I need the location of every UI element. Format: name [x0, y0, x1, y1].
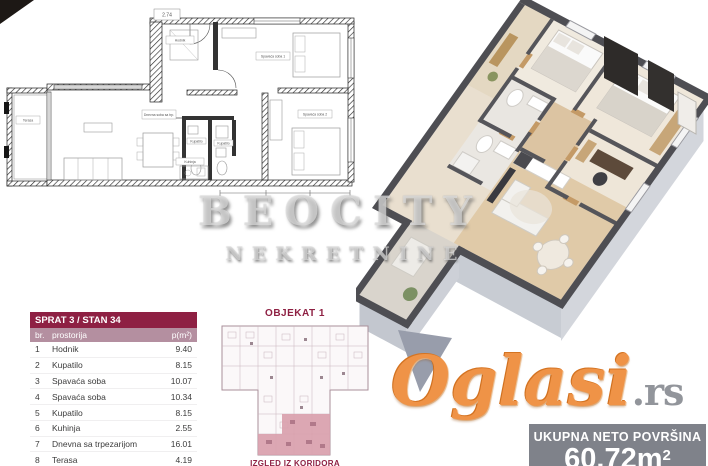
brand-watermark: BEOCITY — [198, 188, 474, 235]
portal-watermark: Oglasi.rs — [391, 348, 683, 416]
portal-tld: .rs — [632, 369, 684, 414]
col-area: p(m²) — [162, 330, 192, 340]
table-row: 4 Spavaća soba 10.34 — [30, 389, 197, 405]
total-area-box: UKUPNA NETO POVRŠINA 60.72m2 — [529, 424, 706, 466]
label-hall: Hodnik — [175, 39, 186, 43]
brand-watermark-sub: NEKRETNINE — [208, 243, 484, 265]
label-terrace: Terasa — [23, 119, 33, 123]
total-area-value: 60.72m2 — [529, 445, 706, 466]
table-column-header: br. prostorija p(m²) — [30, 328, 197, 342]
unit-area-table: SPRAT 3 / STAN 34 br. prostorija p(m²) 1… — [30, 312, 197, 466]
label-kitchen: Kuhinja — [184, 160, 195, 164]
building-caption: IZGLED IZ KORIDORA — [222, 459, 368, 466]
table-body: 1 Hodnik 9.40 2 Kupatilo 8.15 3 Spavaća … — [30, 342, 197, 466]
label-bedroom1: Spavaća soba 1 — [261, 55, 285, 59]
portal-name: Oglasi — [391, 342, 632, 422]
table-title: SPRAT 3 / STAN 34 — [30, 312, 197, 328]
label-bedroom2: Spavaća soba 2 — [303, 113, 327, 117]
table-row: 8 Terasa 4.19 — [30, 452, 197, 466]
col-num: br. — [35, 330, 52, 340]
label-living: Dnevna soba sa trp. — [144, 113, 174, 117]
table-row: 5 Kupatilo 8.15 — [30, 405, 197, 421]
building-plan — [220, 322, 370, 456]
corner-triangle-decoration — [0, 0, 34, 24]
table-row: 6 Kuhinja 2.55 — [30, 421, 197, 437]
table-row: 7 Dnevna sa trpezarijom 16.01 — [30, 437, 197, 453]
listing-image: 2.74 Dnevna soba sa trp. Terasa Kuhinja … — [0, 0, 708, 466]
dim-note: 2.74 — [162, 13, 172, 19]
label-bath1: Kupatilo — [190, 140, 202, 144]
table-row: 2 Kupatilo 8.15 — [30, 358, 197, 374]
building-title: OBJEKAT 1 — [230, 308, 360, 319]
total-area-label: UKUPNA NETO POVRŠINA — [529, 430, 706, 444]
label-bath2: Kupatilo — [217, 142, 229, 146]
table-row: 3 Spavaća soba 10.07 — [30, 374, 197, 390]
floorplan-2d: 2.74 Dnevna soba sa trp. Terasa Kuhinja … — [4, 8, 356, 200]
table-row: 1 Hodnik 9.40 — [30, 342, 197, 358]
col-room: prostorija — [52, 330, 162, 340]
plan-2d-drawing: 2.74 Dnevna soba sa trp. Terasa Kuhinja … — [4, 9, 354, 196]
